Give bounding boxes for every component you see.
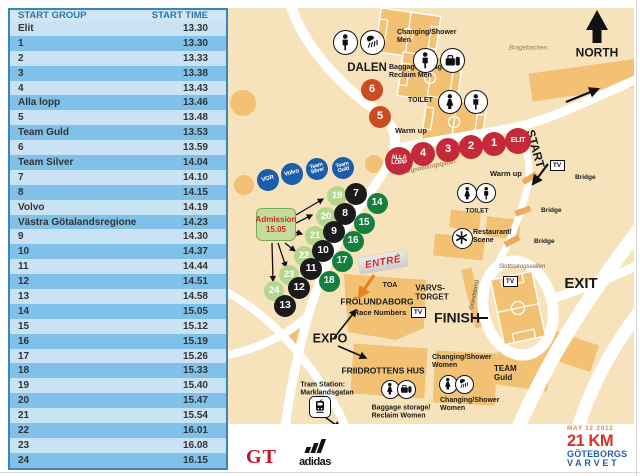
start-time-cell: 15.19	[136, 334, 226, 349]
label-slottsskogsvallen: Slottsskogsvallen	[499, 264, 545, 270]
event-logo: MAY 12 2012 21 KM GÖTEBORGS VARVET	[567, 426, 639, 469]
start-time-cell: 14.04	[136, 155, 226, 170]
label-warm-up-1: Warm up	[395, 127, 427, 135]
start-group-cell: 7	[10, 170, 136, 185]
label-changing-shower-men: Changing/Shower Men	[397, 29, 457, 44]
start-group-cell: 14	[10, 304, 136, 319]
event-distance: 21 KM	[567, 433, 639, 450]
start-time-cell: 14.23	[136, 215, 226, 230]
admission-time: 15.05	[266, 225, 286, 235]
start-table: START GROUPSTART TIME Elit13.30113.30213…	[10, 10, 226, 468]
start-group-cell: 11	[10, 259, 136, 274]
badge-team-guld: Team Guld	[330, 155, 357, 182]
start-group-cell: 20	[10, 393, 136, 408]
map: Changing/Shower MenDALENBaggage storage/…	[228, 8, 634, 424]
table-row: 2316.08	[10, 438, 226, 453]
start-time-cell: 15.40	[136, 378, 226, 393]
start-time-cell: 13.59	[136, 140, 226, 155]
start-group-cell: 22	[10, 423, 136, 438]
table-row: Elit13.30	[10, 21, 226, 36]
start-table-header-row: START GROUPSTART TIME	[10, 10, 226, 21]
table-row: 1615.19	[10, 334, 226, 349]
table-row: 613.59	[10, 140, 226, 155]
badge-11: 11	[300, 258, 322, 280]
label-bragebacken: Bragebacken	[509, 44, 547, 51]
table-row: 1815.33	[10, 363, 226, 378]
start-time-cell: 13.53	[136, 125, 226, 140]
start-group-cell: 16	[10, 334, 136, 349]
start-group-cell: 4	[10, 81, 136, 96]
start-group-cell: 9	[10, 229, 136, 244]
start-group-cell: 5	[10, 110, 136, 125]
table-row: 914.30	[10, 229, 226, 244]
start-group-cell: Team Silver	[10, 155, 136, 170]
badge-2: 2	[459, 135, 483, 159]
start-time-cell: 15.26	[136, 349, 226, 364]
start-group-table-panel: START GROUPSTART TIME Elit13.30113.30213…	[8, 8, 228, 470]
badge-7: 7	[345, 183, 367, 205]
badge-18: 18	[319, 271, 340, 292]
label-frolundaborg: FRÖLUNDABORG	[340, 297, 413, 306]
table-row: 513.48	[10, 110, 226, 125]
toilet-men-icon-mid	[476, 183, 496, 203]
table-row: 213.33	[10, 51, 226, 66]
label-toilet-top: TOILET	[408, 97, 433, 105]
men-baggage-person-icon	[413, 48, 438, 73]
label-race-numbers: Race Numbers	[354, 309, 407, 317]
badge-13: 13	[274, 295, 296, 317]
table-row: 2115.54	[10, 408, 226, 423]
event-name-line2: VARVET	[567, 459, 639, 468]
table-row: 1915.40	[10, 378, 226, 393]
page: START GROUPSTART TIME Elit13.30113.30213…	[0, 0, 640, 476]
start-time-cell: 14.58	[136, 289, 226, 304]
badge-team-silver: Team Silver	[304, 156, 331, 183]
label-bridge-2: Bridge	[541, 207, 562, 214]
adidas-logo: adidas	[290, 435, 340, 468]
table-row: 1014.37	[10, 244, 226, 259]
badge-17: 17	[332, 251, 353, 272]
table-row: 1515.12	[10, 319, 226, 334]
table-row: 1415.05	[10, 304, 226, 319]
start-group-cell: 1	[10, 36, 136, 51]
start-time-cell: 16.15	[136, 453, 226, 468]
start-group-cell: Team Guld	[10, 125, 136, 140]
adidas-label: adidas	[290, 456, 340, 468]
tram-icon	[309, 396, 331, 418]
adidas-mark-icon	[298, 435, 332, 453]
label-warm-up-2: Warm up	[490, 170, 522, 178]
badge-elit: ELIT	[505, 128, 531, 154]
table-row: 413.43	[10, 81, 226, 96]
label-varvstorget: VARVS- TORGET	[415, 284, 448, 301]
start-time-cell: 13.46	[136, 95, 226, 110]
shower-icon-men	[360, 30, 385, 55]
start-time-cell: 14.15	[136, 185, 226, 200]
table-row: 1114.44	[10, 259, 226, 274]
start-time-cell: 15.47	[136, 393, 226, 408]
toilet-men-icon-top	[464, 90, 488, 114]
gt-logo: GT	[246, 446, 277, 469]
table-row: 2015.47	[10, 393, 226, 408]
toilet-women-icon-mid	[457, 183, 477, 203]
start-group-cell: 19	[10, 378, 136, 393]
start-time-cell: 16.01	[136, 423, 226, 438]
table-row: Team Silver14.04	[10, 155, 226, 170]
label-changing-women-1: Changing/Shower Women	[432, 354, 492, 369]
table-row: 313.38	[10, 66, 226, 81]
table-row: 714.10	[10, 170, 226, 185]
start-group-cell: Västra Götalandsregionen	[10, 215, 136, 230]
table-row: Västra Götalandsregionen14.23	[10, 215, 226, 230]
badge-3: 3	[436, 138, 460, 162]
badge-vgr: VGR	[255, 167, 282, 194]
start-time-cell: 13.43	[136, 81, 226, 96]
badge-6: 6	[361, 79, 383, 101]
start-time-cell: 15.12	[136, 319, 226, 334]
label-team-guld: TEAM Guld	[494, 365, 517, 382]
start-time-cell: 13.38	[136, 66, 226, 81]
label-restaurant-scene: Restaurant/ Scene	[473, 229, 512, 244]
table-row: Volvo14.19	[10, 200, 226, 215]
start-time-cell: 15.05	[136, 304, 226, 319]
badge-1: 1	[482, 132, 506, 156]
tv-icon: TV	[503, 276, 518, 287]
table-row: 1314.58	[10, 289, 226, 304]
table-row: 1214.51	[10, 274, 226, 289]
start-time-cell: 15.33	[136, 363, 226, 378]
table-row: Team Guld13.53	[10, 125, 226, 140]
shower-icon-women	[455, 375, 474, 394]
start-time-cell: 14.44	[136, 259, 226, 274]
label-baggage-women: Baggage storage/ Reclaim Women	[372, 404, 431, 419]
start-time-cell: 15.54	[136, 408, 226, 423]
badge-5: 5	[369, 106, 391, 128]
start-time-cell: 13.30	[136, 21, 226, 36]
start-group-cell: 10	[10, 244, 136, 259]
table-row: 113.30	[10, 36, 226, 51]
admission-title: Admission	[256, 215, 297, 225]
start-group-cell: 13	[10, 289, 136, 304]
table-row: 1715.26	[10, 349, 226, 364]
label-expo: EXPO	[313, 332, 348, 346]
badge-4: 4	[411, 142, 435, 166]
label-north: NORTH	[576, 47, 619, 60]
badge-12: 12	[288, 277, 310, 299]
start-group-cell: Elit	[10, 21, 136, 36]
badge-14: 14	[367, 193, 388, 214]
toilet-women-icon-top	[438, 90, 462, 114]
badge-alla-lopp: ALLA LOPP	[385, 147, 413, 175]
start-time-cell: 14.51	[136, 274, 226, 289]
start-time-cell: 14.30	[136, 229, 226, 244]
start-group-cell: 15	[10, 319, 136, 334]
table-row: 2216.01	[10, 423, 226, 438]
label-changing-women-2: Changing/Shower Women	[440, 397, 500, 412]
badge-16: 16	[343, 231, 364, 252]
men-icon	[333, 30, 358, 55]
label-dalen: DALEN	[347, 62, 387, 74]
start-table-body: Elit13.30113.30213.33313.38413.43Alla lo…	[10, 21, 226, 468]
column-header-1: START TIME	[136, 10, 226, 21]
label-toa: TOA	[383, 282, 398, 290]
start-group-cell: 17	[10, 349, 136, 364]
label-exit: EXIT	[564, 276, 597, 292]
start-time-cell: 13.33	[136, 51, 226, 66]
start-group-cell: 8	[10, 185, 136, 200]
tv-icon: TV	[550, 160, 565, 171]
start-group-cell: 21	[10, 408, 136, 423]
start-group-cell: 18	[10, 363, 136, 378]
badge-volvo: Volvo	[279, 161, 306, 188]
start-time-cell: 14.10	[136, 170, 226, 185]
start-time-cell: 13.48	[136, 110, 226, 125]
start-time-cell: 14.19	[136, 200, 226, 215]
start-group-cell: 3	[10, 66, 136, 81]
start-group-cell: Alla lopp	[10, 95, 136, 110]
label-finish: FINISH	[434, 310, 480, 325]
page-bottom-rule	[0, 472, 640, 473]
label-toilet-mid: TOILET	[466, 207, 489, 214]
column-header-0: START GROUP	[10, 10, 136, 21]
baggage-icon-men	[440, 48, 465, 73]
label-tram-station: Tram Station: Marklandsgatan	[300, 381, 353, 396]
start-group-cell: 23	[10, 438, 136, 453]
start-group-cell: 12	[10, 274, 136, 289]
label-bridge-3: Bridge	[534, 238, 555, 245]
start-group-cell: Volvo	[10, 200, 136, 215]
restaurant-icon	[452, 228, 473, 249]
table-row: 814.15	[10, 185, 226, 200]
start-time-cell: 16.08	[136, 438, 226, 453]
baggage-icon-women	[397, 380, 416, 399]
tv-icon: TV	[411, 307, 426, 318]
start-time-cell: 13.30	[136, 36, 226, 51]
start-time-cell: 14.37	[136, 244, 226, 259]
label-friidrottens-hus: FRIIDROTTENS HUS	[341, 366, 424, 375]
admission-box: Admission 15.05	[256, 208, 296, 241]
table-row: Alla lopp13.46	[10, 95, 226, 110]
start-group-cell: 24	[10, 453, 136, 468]
label-bridge-1: Bridge	[575, 174, 596, 181]
start-group-cell: 6	[10, 140, 136, 155]
start-group-cell: 2	[10, 51, 136, 66]
table-row: 2416.15	[10, 453, 226, 468]
page-right-rule	[636, 0, 637, 476]
badge-15: 15	[354, 213, 375, 234]
